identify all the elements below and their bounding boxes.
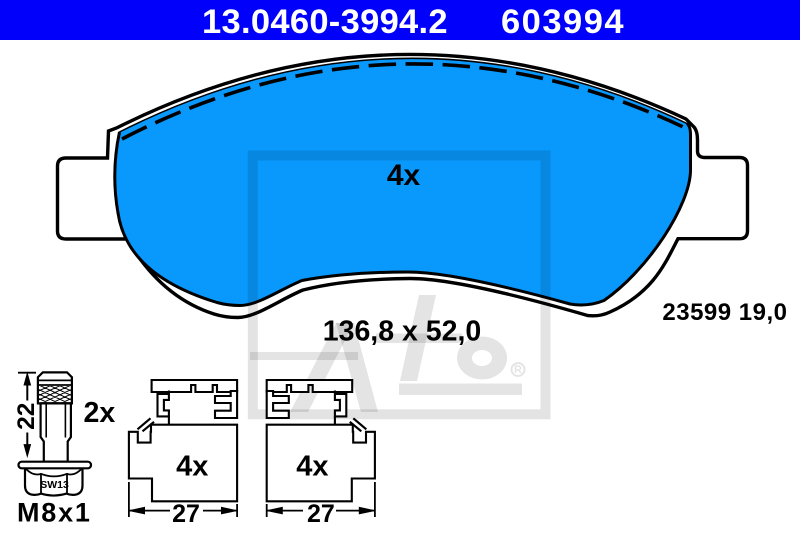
svg-text:22: 22: [13, 403, 40, 430]
svg-text:M8x1: M8x1: [17, 498, 92, 528]
svg-text:4x: 4x: [176, 451, 208, 483]
svg-text:SW13: SW13: [40, 479, 69, 491]
svg-text:13.0460-3994.2: 13.0460-3994.2: [202, 3, 448, 41]
svg-text:23599 19,0: 23599 19,0: [662, 299, 787, 326]
svg-text:136,8 x 52,0: 136,8 x 52,0: [323, 316, 481, 348]
svg-text:27: 27: [172, 500, 200, 528]
svg-text:27: 27: [307, 500, 335, 528]
svg-text:2x: 2x: [84, 397, 116, 429]
svg-text:603994: 603994: [501, 3, 625, 41]
svg-text:4x: 4x: [296, 451, 328, 483]
svg-text:4x: 4x: [387, 159, 421, 192]
